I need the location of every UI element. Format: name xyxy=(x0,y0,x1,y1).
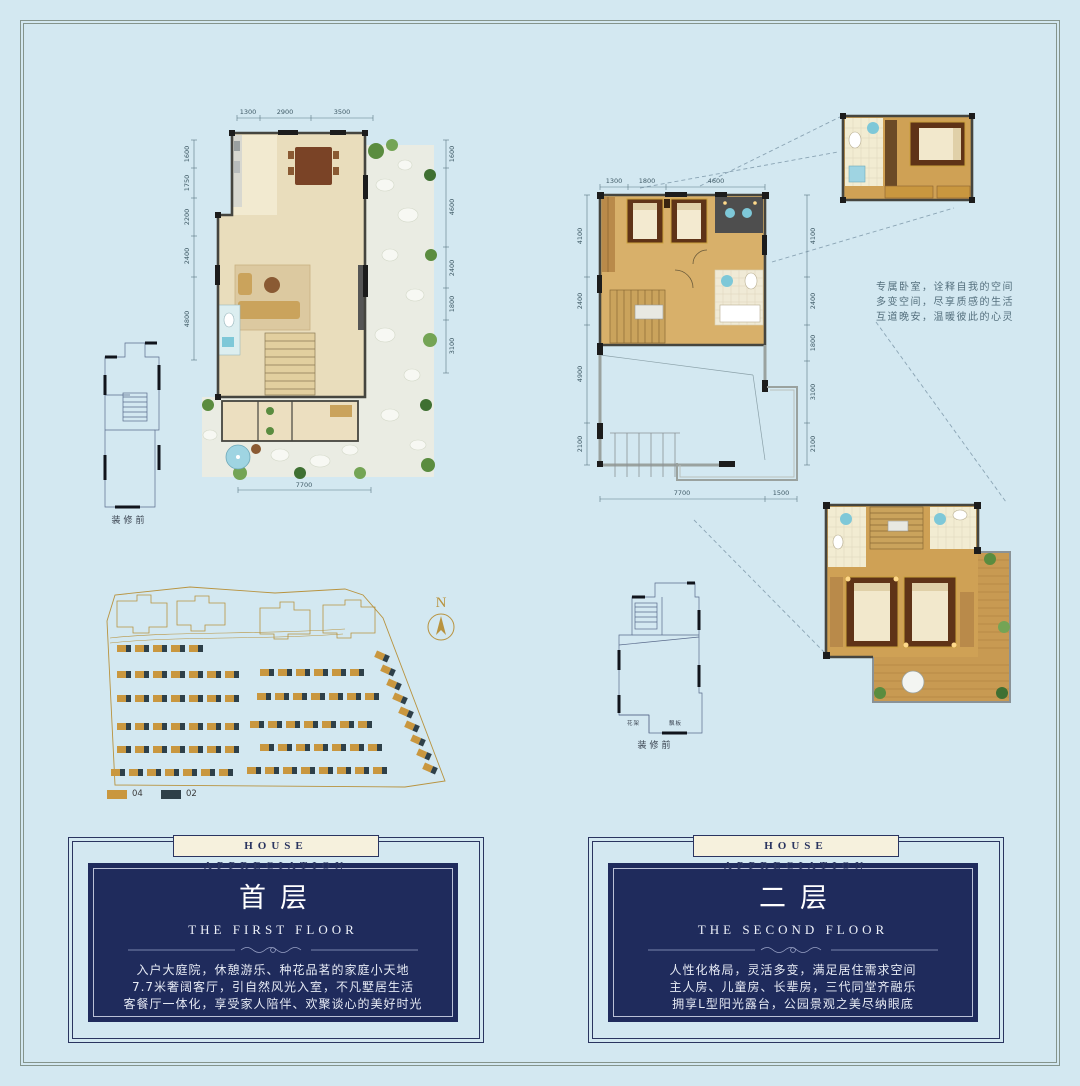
svg-text:2900: 2900 xyxy=(277,108,294,116)
upper-floor-interior xyxy=(600,195,765,345)
ensuite-bath xyxy=(845,118,883,186)
site-unit xyxy=(189,645,203,652)
card-subtitle: THE SECOND FLOOR xyxy=(608,922,978,938)
bath-left xyxy=(828,507,866,567)
site-unit xyxy=(171,695,185,702)
legend-swatch-02 xyxy=(161,790,181,799)
bathroom-2 xyxy=(715,270,763,325)
site-unit xyxy=(296,744,310,751)
wardrobe-right xyxy=(960,592,974,647)
site-unit xyxy=(368,744,382,751)
card-panel: 首层 THE FIRST FLOOR 入户大庭院，休憩游乐、种花品茗的家庭小天地… xyxy=(88,863,458,1022)
detail-bed xyxy=(910,122,965,166)
site-unit xyxy=(165,769,179,776)
card-title: 首层 xyxy=(88,876,458,915)
site-unit xyxy=(135,671,149,678)
detail-bed-2 xyxy=(904,577,957,648)
site-unit xyxy=(332,744,346,751)
site-unit xyxy=(117,695,131,702)
site-unit xyxy=(135,645,149,652)
card-body-line: 拥享L型阳光露台，公园景观之美尽纳眼底 xyxy=(608,996,978,1013)
site-unit xyxy=(135,695,149,702)
site-unit xyxy=(219,769,233,776)
card-banner: HOUSE APPRECIATION xyxy=(173,835,379,857)
wardrobe-left xyxy=(830,577,843,647)
dim-bottom-2: 7700 1500 xyxy=(600,489,797,502)
site-unit xyxy=(355,767,369,774)
site-unit xyxy=(250,721,264,728)
site-unit xyxy=(260,669,274,676)
svg-text:1600: 1600 xyxy=(448,146,456,163)
dim-right-2: 4100 2400 1800 3100 2100 xyxy=(804,195,817,465)
site-plan: N 04 02 xyxy=(95,583,465,811)
site-unit xyxy=(275,693,289,700)
svg-text:7700: 7700 xyxy=(674,489,691,497)
site-unit xyxy=(135,723,149,730)
site-unit xyxy=(153,746,167,753)
compass: N xyxy=(428,595,454,640)
svg-text:飘板: 飘板 xyxy=(669,719,682,727)
staircase-2 xyxy=(610,290,665,343)
legend-unit-02: 02 xyxy=(161,789,197,799)
master-bath-counter xyxy=(715,197,763,233)
card-body-line: 入户大庭院，休憩游乐、种花品茗的家庭小天地 xyxy=(88,962,458,979)
svg-text:4800: 4800 xyxy=(183,311,191,328)
site-unit xyxy=(340,721,354,728)
site-unit xyxy=(153,723,167,730)
site-unit xyxy=(296,669,310,676)
second-floor-card: HOUSE APPRECIATION 二层 THE SECOND FLOOR 人… xyxy=(588,837,1004,1043)
site-unit xyxy=(117,746,131,753)
svg-text:1800: 1800 xyxy=(639,177,656,185)
site-unit xyxy=(207,695,221,702)
site-unit xyxy=(207,723,221,730)
house-interior xyxy=(218,133,365,397)
svg-text:3100: 3100 xyxy=(809,384,817,401)
site-unit xyxy=(117,645,131,652)
svg-text:2100: 2100 xyxy=(809,436,817,453)
site-unit xyxy=(183,769,197,776)
wardrobes xyxy=(885,186,970,198)
svg-text:1300: 1300 xyxy=(240,108,257,116)
site-unit xyxy=(207,746,221,753)
site-unit xyxy=(319,767,333,774)
dim-top-2: 1300 1800 4600 xyxy=(600,177,765,190)
svg-text:4900: 4900 xyxy=(576,366,584,383)
card-panel: 二层 THE SECOND FLOOR 人性化格局，灵活多变，满足居住需求空间 … xyxy=(608,863,978,1022)
site-unit xyxy=(373,767,387,774)
bedroom-annotation: 专属卧室，诠释自我的空间 多变空间，尽享质感的生活 互道晚安，温暖彼此的心灵 xyxy=(876,280,1046,325)
site-unit xyxy=(314,744,328,751)
site-unit xyxy=(322,721,336,728)
console xyxy=(885,120,897,186)
site-unit xyxy=(247,767,261,774)
annotation-line: 多变空间，尽享质感的生活 xyxy=(876,295,1046,310)
pergola-lines xyxy=(610,433,680,477)
card-body-line: 人性化格局，灵活多变，满足居住需求空间 xyxy=(608,962,978,979)
svg-text:7700: 7700 xyxy=(296,481,313,489)
annotation-line: 专属卧室，诠释自我的空间 xyxy=(876,280,1046,295)
svg-text:1500: 1500 xyxy=(773,489,790,497)
svg-text:4100: 4100 xyxy=(809,228,817,245)
legend-label-02: 02 xyxy=(186,789,197,799)
dim-left-2: 4100 2400 4900 2100 xyxy=(576,195,590,465)
site-unit xyxy=(153,695,167,702)
card-title: 二层 xyxy=(608,876,978,915)
card-subtitle: THE FIRST FLOOR xyxy=(88,922,458,938)
svg-text:1300: 1300 xyxy=(606,177,623,185)
detail-bed-1 xyxy=(846,577,899,648)
site-unit xyxy=(207,671,221,678)
site-unit xyxy=(147,769,161,776)
svg-text:2400: 2400 xyxy=(448,260,456,277)
site-unit xyxy=(171,671,185,678)
site-unit xyxy=(278,744,292,751)
dining-table xyxy=(288,147,339,185)
site-unit xyxy=(117,671,131,678)
svg-text:1800: 1800 xyxy=(448,296,456,313)
site-unit xyxy=(189,746,203,753)
legend-unit-04: 04 xyxy=(107,789,143,799)
legend-label-04: 04 xyxy=(132,789,143,799)
staircase xyxy=(265,333,315,395)
dim-bottom: 7700 xyxy=(238,481,371,493)
second-floor-sketch-plan: 花架 飘板 xyxy=(607,575,712,747)
site-unit xyxy=(129,769,143,776)
bed-1 xyxy=(627,199,663,243)
bedroom-detail-plan xyxy=(835,108,980,208)
site-unit xyxy=(268,721,282,728)
svg-text:4600: 4600 xyxy=(448,199,456,216)
svg-text:4100: 4100 xyxy=(576,228,584,245)
site-unit xyxy=(201,769,215,776)
card-body-line: 7.7米奢阔客厅，引自然风光入室，不凡墅居生活 xyxy=(88,979,458,996)
site-unit xyxy=(171,723,185,730)
second-floor-detail-plan xyxy=(818,497,1014,709)
site-unit xyxy=(189,695,203,702)
first-floor-card: HOUSE APPRECIATION 首层 THE FIRST FLOOR 入户… xyxy=(68,837,484,1043)
site-unit xyxy=(225,723,239,730)
dim-top: 1300 2900 3500 xyxy=(237,108,373,121)
site-unit xyxy=(347,693,361,700)
card-banner: HOUSE APPRECIATION xyxy=(693,835,899,857)
card-body: 入户大庭院，休憩游乐、种花品茗的家庭小天地 7.7米奢阔客厅，引自然风光入室，不… xyxy=(88,962,458,1013)
site-unit xyxy=(111,769,125,776)
dim-right: 1600 4600 2400 1800 3100 xyxy=(443,140,456,373)
svg-text:2100: 2100 xyxy=(576,436,584,453)
svg-text:N: N xyxy=(436,595,447,611)
card-divider-ornament xyxy=(643,944,943,956)
site-unit xyxy=(257,693,271,700)
site-unit xyxy=(286,721,300,728)
site-unit xyxy=(278,669,292,676)
site-unit xyxy=(225,746,239,753)
site-unit xyxy=(225,695,239,702)
site-unit xyxy=(332,669,346,676)
first-floor-plan: 1300 2900 3500 1600 1750 2200 2400 4800 … xyxy=(180,105,480,505)
site-unit xyxy=(135,746,149,753)
svg-text:4600: 4600 xyxy=(708,177,725,185)
svg-text:2200: 2200 xyxy=(183,209,191,226)
site-unit xyxy=(350,669,364,676)
card-body: 人性化格局，灵活多变，满足居住需求空间 主人房、儿童房、长辈房，三代同堂齐融乐 … xyxy=(608,962,978,1013)
bathroom xyxy=(218,305,240,355)
svg-text:2400: 2400 xyxy=(809,293,817,310)
svg-text:1600: 1600 xyxy=(183,146,191,163)
svg-text:花架: 花架 xyxy=(627,719,640,727)
second-floor-plan: 1300 1800 4600 4100 2400 4900 2100 4100 … xyxy=(575,175,820,525)
terrace-table xyxy=(902,671,924,693)
site-unit xyxy=(358,721,372,728)
site-unit xyxy=(350,744,364,751)
site-unit xyxy=(225,671,239,678)
site-unit xyxy=(265,767,279,774)
site-unit xyxy=(311,693,325,700)
stairs-detail xyxy=(870,507,923,549)
first-floor-sketch-plan xyxy=(85,335,175,513)
site-unit xyxy=(189,671,203,678)
first-floor-sketch-caption: 装修前 xyxy=(92,513,167,526)
card-divider-ornament xyxy=(123,944,423,956)
card-body-line: 客餐厅一体化，享受家人陪伴、欢聚谈心的美好时光 xyxy=(88,996,458,1013)
site-unit xyxy=(171,645,185,652)
site-unit xyxy=(171,746,185,753)
svg-text:2400: 2400 xyxy=(576,293,584,310)
annotation-line: 互道晚安，温暖彼此的心灵 xyxy=(876,310,1046,325)
site-unit xyxy=(283,767,297,774)
legend-swatch-04 xyxy=(107,790,127,799)
site-unit xyxy=(301,767,315,774)
dim-left: 1600 1750 2200 2400 4800 xyxy=(183,140,197,360)
site-unit xyxy=(293,693,307,700)
site-unit xyxy=(189,723,203,730)
site-unit xyxy=(365,693,379,700)
site-unit xyxy=(314,669,328,676)
ground-floor-rooms xyxy=(222,401,358,441)
bath-right xyxy=(930,507,976,549)
site-unit xyxy=(260,744,274,751)
card-body-line: 主人房、儿童房、长辈房，三代同堂齐融乐 xyxy=(608,979,978,996)
svg-text:1750: 1750 xyxy=(183,175,191,192)
svg-text:2400: 2400 xyxy=(183,248,191,265)
bed-2 xyxy=(671,199,707,243)
site-unit xyxy=(337,767,351,774)
svg-text:3500: 3500 xyxy=(334,108,351,116)
lower-open-area xyxy=(597,343,797,480)
site-unit xyxy=(304,721,318,728)
site-unit xyxy=(153,671,167,678)
site-unit xyxy=(153,645,167,652)
site-unit xyxy=(329,693,343,700)
site-unit xyxy=(117,723,131,730)
second-floor-sketch-caption: 装修前 xyxy=(618,738,693,751)
svg-text:1800: 1800 xyxy=(809,335,817,352)
svg-text:3100: 3100 xyxy=(448,338,456,355)
